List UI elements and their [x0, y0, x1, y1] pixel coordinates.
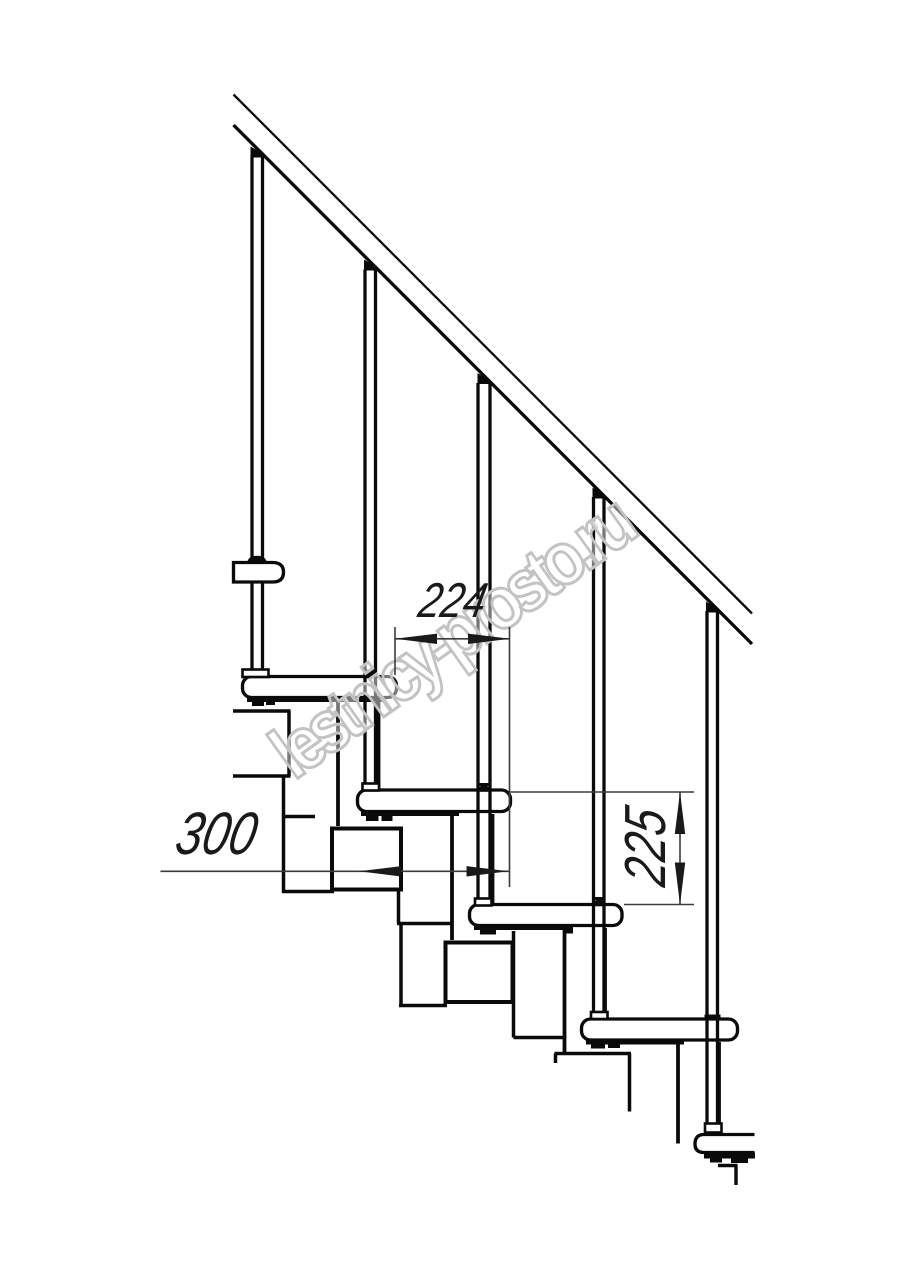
- svg-text:224: 224: [413, 574, 492, 628]
- svg-text:300: 300: [170, 800, 263, 867]
- svg-text:225: 225: [613, 801, 678, 892]
